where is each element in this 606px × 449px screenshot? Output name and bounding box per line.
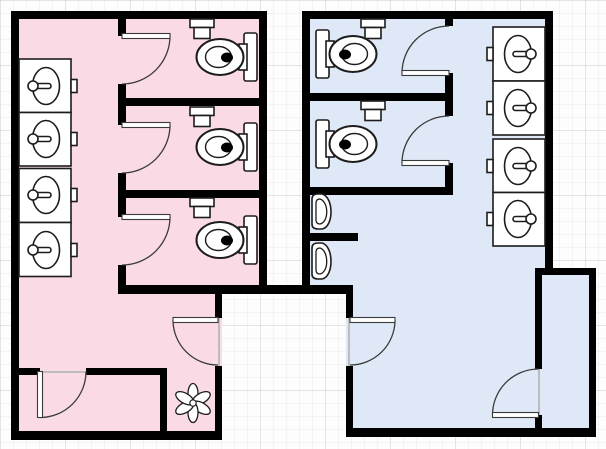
sink	[19, 59, 77, 113]
door-leaf	[38, 372, 43, 418]
sink	[487, 139, 545, 193]
wall	[215, 285, 222, 318]
wall	[118, 285, 353, 294]
wall	[215, 366, 222, 440]
wall	[589, 268, 596, 437]
wall	[535, 270, 542, 369]
soap-dispenser	[71, 133, 77, 146]
faucet-knob-icon	[28, 190, 38, 200]
flush-valve-plate	[190, 198, 214, 207]
soap-dispenser	[71, 80, 77, 93]
wall	[445, 19, 453, 26]
flush-valve	[361, 19, 385, 39]
door-leaf	[122, 34, 170, 39]
flush-valve-box	[365, 110, 381, 121]
wall	[346, 366, 353, 437]
soap-dispenser	[71, 189, 77, 202]
door-leaf	[122, 215, 170, 220]
flush-valve-plate	[361, 101, 385, 110]
plant-center	[190, 400, 196, 406]
flush-valve-plate	[190, 19, 214, 28]
flush-valve-box	[365, 28, 381, 39]
soap-dispenser	[487, 102, 493, 115]
flush-valve-box	[194, 116, 210, 127]
toilet-drain	[339, 140, 351, 150]
urinal-bowl	[316, 199, 327, 224]
door-leaf	[402, 71, 449, 76]
faucet-knob-icon	[28, 245, 38, 255]
sink	[487, 81, 545, 135]
door-leaf	[350, 318, 395, 323]
faucet-knob-icon	[526, 214, 536, 224]
sink	[19, 113, 77, 167]
floor-plan-svg	[0, 0, 606, 449]
door-leaf	[173, 318, 218, 323]
wall	[310, 187, 453, 195]
wall	[86, 368, 167, 375]
faucet-knob-icon	[526, 161, 536, 171]
wall	[11, 11, 267, 19]
wall	[118, 190, 259, 198]
wall	[160, 368, 167, 440]
soap-dispenser	[71, 244, 77, 257]
soap-dispenser	[487, 48, 493, 61]
door-leaf	[402, 161, 449, 166]
door-leaf	[122, 123, 170, 128]
wall	[11, 431, 222, 440]
flush-valve-plate	[190, 107, 214, 116]
wall	[346, 285, 353, 318]
flush-valve	[361, 101, 385, 121]
mens-restroom-floor	[535, 268, 596, 437]
wall	[11, 368, 40, 375]
soap-dispenser	[487, 213, 493, 226]
wall	[118, 98, 259, 106]
toilet-drain	[221, 143, 233, 153]
urinal	[312, 194, 331, 229]
flush-valve	[190, 19, 214, 39]
flush-valve	[190, 107, 214, 127]
doorway-threshold	[218, 318, 220, 366]
flush-valve-plate	[361, 19, 385, 28]
toilet-drain	[221, 53, 233, 63]
floor-plan	[0, 0, 606, 449]
faucet-knob-icon	[28, 81, 38, 91]
soap-dispenser	[487, 160, 493, 173]
urinal	[312, 243, 331, 279]
wall	[259, 11, 267, 294]
wall	[346, 428, 596, 437]
wall	[445, 101, 453, 116]
wall	[302, 11, 310, 294]
wall	[302, 233, 358, 241]
urinal-bowl	[316, 248, 327, 274]
sink	[19, 223, 77, 277]
flush-valve-box	[194, 28, 210, 39]
faucet-knob-icon	[526, 103, 536, 113]
wall	[11, 11, 19, 440]
faucet-knob-icon	[28, 134, 38, 144]
wall	[310, 93, 453, 101]
flush-valve-box	[194, 207, 210, 218]
toilet-drain	[339, 50, 351, 60]
sink	[19, 169, 77, 223]
sink	[487, 193, 545, 247]
doorway-threshold	[538, 369, 540, 415]
flush-valve	[190, 198, 214, 218]
doorway-threshold	[40, 371, 86, 373]
toilet-drain	[221, 236, 233, 246]
wall	[535, 268, 596, 275]
faucet-knob-icon	[526, 49, 536, 59]
wall	[302, 11, 553, 19]
door-leaf	[493, 413, 539, 418]
wall	[545, 11, 553, 271]
sink	[487, 27, 545, 81]
doorway-threshold	[348, 318, 350, 366]
